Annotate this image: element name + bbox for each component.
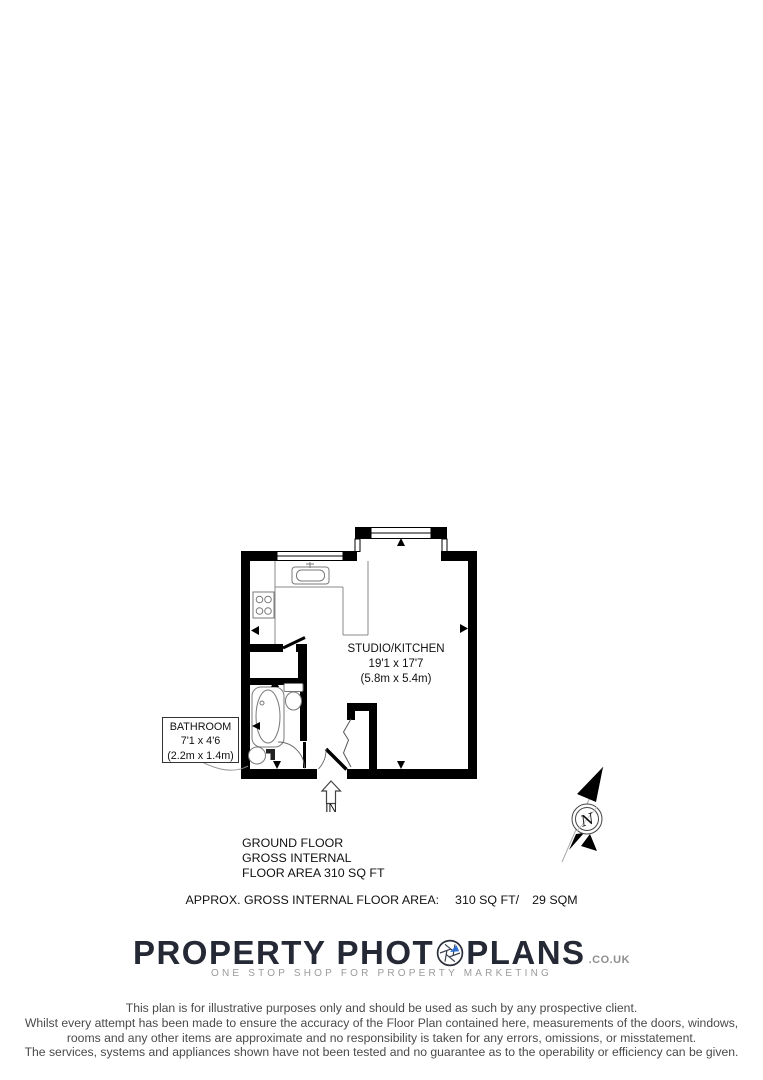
survey-marker-down-icon <box>397 761 405 769</box>
studio-room-metric: (5.8m x 5.4m) <box>306 672 486 687</box>
brand-logo: PROPERTY PHOT PLANS .CO.UK <box>0 936 763 969</box>
disclaimer-text: This plan is for illustrative purposes o… <box>0 1001 763 1060</box>
studio-room-imperial: 19'1 x 17'7 <box>306 657 486 672</box>
approx-area-line: APPROX. GROSS INTERNAL FLOOR AREA:310 SQ… <box>0 893 763 907</box>
floor-plan-drawing: N <box>0 0 763 1080</box>
brand-tagline: ONE STOP SHOP FOR PROPERTY MARKETING <box>0 968 763 979</box>
disclaimer-line-4: The services, systems and appliances sho… <box>0 1045 763 1060</box>
entrance-label: IN <box>316 803 346 816</box>
floor-title: GROUND FLOOR <box>242 836 385 851</box>
entrance-arrow-icon <box>322 781 341 804</box>
kitchen-window <box>277 552 343 561</box>
survey-marker-bath-down-icon <box>273 761 281 769</box>
floor-gross-line: GROSS INTERNAL <box>242 851 385 866</box>
approx-label: APPROX. GROSS INTERNAL FLOOR AREA: <box>185 893 439 907</box>
bay-window <box>355 527 447 552</box>
bathroom-room-metric: (2.2m x 1.4m) <box>163 749 238 763</box>
toilet <box>284 684 303 711</box>
floor-summary: GROUND FLOOR GROSS INTERNAL FLOOR AREA 3… <box>242 836 385 881</box>
closet-bifold-door <box>344 719 352 767</box>
disclaimer-line-3: rooms and any other items are approximat… <box>0 1031 763 1046</box>
bathroom-label-box: BATHROOM 7'1 x 4'6 (2.2m x 1.4m) <box>162 717 239 763</box>
bathroom-door <box>278 742 305 769</box>
bathtub <box>252 687 284 747</box>
entrance-door <box>319 749 347 770</box>
logo-suffix: .CO.UK <box>589 955 631 966</box>
compass-icon: N <box>562 767 603 862</box>
disclaimer-line-2: Whilst every attempt has been made to en… <box>0 1016 763 1031</box>
survey-marker-left-icon <box>251 626 259 635</box>
studio-room-label: STUDIO/KITCHEN 19'1 x 17'7 (5.8m x 5.4m) <box>306 642 486 687</box>
wash-basin <box>249 747 276 764</box>
disclaimer-line-1: This plan is for illustrative purposes o… <box>0 1001 763 1016</box>
studio-room-name: STUDIO/KITCHEN <box>306 642 486 657</box>
bathroom-room-imperial: 7'1 x 4'6 <box>163 734 238 748</box>
approx-metric: 29 SQM <box>532 893 577 907</box>
logo-text-right: PLANS <box>466 936 585 969</box>
survey-marker-up-icon <box>397 538 405 546</box>
hob <box>253 592 274 618</box>
camera-shutter-icon <box>436 939 464 967</box>
floorplan-page: N STUDIO/KITCHEN 19'1 x 17'7 (5.8m x 5.4… <box>0 0 763 1080</box>
approx-imperial: 310 SQ FT/ <box>455 893 519 907</box>
bathroom-room-name: BATHROOM <box>163 720 238 734</box>
kitchen-sink <box>292 562 329 584</box>
logo-text-left: PROPERTY PHOT <box>133 936 434 969</box>
floor-area-line: FLOOR AREA 310 SQ FT <box>242 866 385 881</box>
survey-marker-right-icon <box>460 624 468 633</box>
